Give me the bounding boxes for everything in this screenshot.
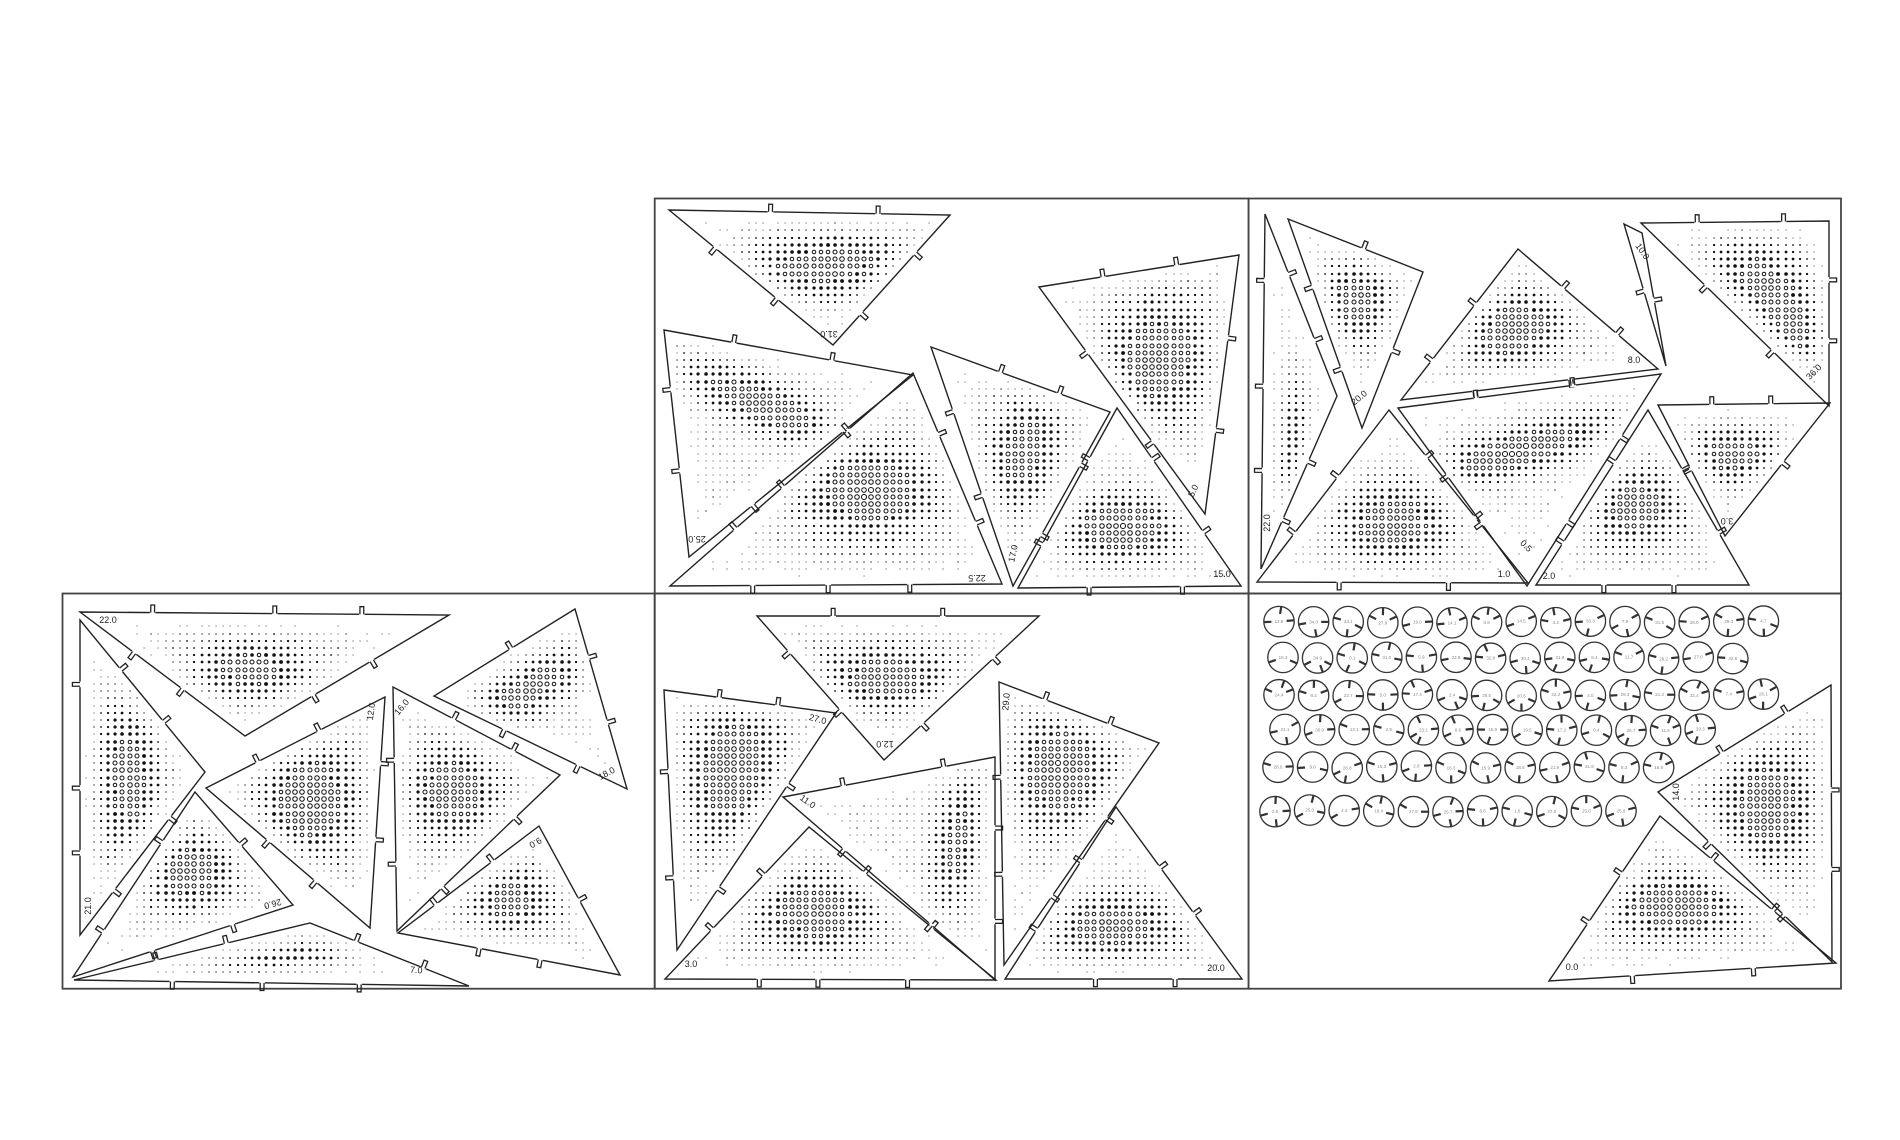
svg-text:14.5: 14.5 xyxy=(1517,619,1526,624)
svg-text:21.1: 21.1 xyxy=(1281,727,1290,732)
svg-text:24.4: 24.4 xyxy=(1275,692,1284,697)
svg-text:22.8: 22.8 xyxy=(1452,655,1461,660)
svg-text:29.5: 29.5 xyxy=(1482,693,1491,698)
svg-text:7.0: 7.0 xyxy=(410,964,423,975)
svg-text:7.4: 7.4 xyxy=(1726,692,1733,697)
svg-text:9.0: 9.0 xyxy=(1309,765,1316,770)
svg-text:22.5: 22.5 xyxy=(968,573,986,583)
svg-text:32.8: 32.8 xyxy=(1486,656,1495,661)
svg-text:3.0: 3.0 xyxy=(1721,516,1734,526)
svg-text:0.4: 0.4 xyxy=(1593,728,1600,733)
svg-text:25.0: 25.0 xyxy=(1582,808,1591,813)
svg-text:14.0: 14.0 xyxy=(1671,783,1681,801)
svg-text:27.6: 27.6 xyxy=(1409,809,1418,814)
svg-text:28.2: 28.2 xyxy=(1659,656,1668,661)
svg-text:29.3: 29.3 xyxy=(1621,692,1630,697)
svg-text:14.1: 14.1 xyxy=(1448,620,1457,625)
svg-text:22.0: 22.0 xyxy=(99,615,117,625)
svg-text:2.8: 2.8 xyxy=(1413,764,1420,769)
svg-text:31.0: 31.0 xyxy=(820,329,838,339)
svg-text:8.2: 8.2 xyxy=(1310,693,1317,698)
svg-text:4.0: 4.0 xyxy=(1587,693,1594,698)
svg-text:26.1: 26.1 xyxy=(1759,692,1768,697)
svg-text:22.0: 22.0 xyxy=(1262,514,1272,532)
svg-text:31.0: 31.0 xyxy=(1382,655,1391,660)
svg-text:5.0: 5.0 xyxy=(1380,692,1387,697)
svg-text:26.7: 26.7 xyxy=(1627,728,1636,733)
svg-text:5.4: 5.4 xyxy=(1591,655,1598,660)
svg-text:4.7: 4.7 xyxy=(1760,619,1767,624)
svg-text:27.9: 27.9 xyxy=(1378,620,1387,625)
svg-text:15.3: 15.3 xyxy=(1377,764,1386,769)
svg-text:8.0: 8.0 xyxy=(1628,355,1641,365)
svg-text:23.1: 23.1 xyxy=(1419,727,1428,732)
svg-text:9.3: 9.3 xyxy=(1621,765,1628,770)
svg-text:15.3: 15.3 xyxy=(1279,655,1288,660)
svg-text:8.6: 8.6 xyxy=(1479,808,1486,813)
svg-text:20.0: 20.0 xyxy=(1207,963,1225,973)
svg-text:30.0: 30.0 xyxy=(1315,727,1324,732)
svg-text:13.1: 13.1 xyxy=(1350,727,1359,732)
svg-text:29.3: 29.3 xyxy=(1696,727,1705,732)
svg-text:0.6: 0.6 xyxy=(1483,620,1490,625)
svg-text:2.4: 2.4 xyxy=(1449,692,1456,697)
svg-text:15.9: 15.9 xyxy=(1488,727,1497,732)
svg-text:18.4: 18.4 xyxy=(1374,809,1383,814)
svg-text:19.0: 19.0 xyxy=(1413,620,1422,625)
svg-text:15.0: 15.0 xyxy=(1213,569,1231,579)
svg-text:1.6: 1.6 xyxy=(1514,809,1521,814)
svg-text:21.9: 21.9 xyxy=(1550,765,1559,770)
svg-text:25.9: 25.9 xyxy=(1617,808,1626,813)
svg-text:26.8: 26.8 xyxy=(1343,765,1352,770)
svg-text:25.7: 25.7 xyxy=(1444,809,1453,814)
svg-text:16.9: 16.9 xyxy=(1654,765,1663,770)
svg-text:34.0: 34.0 xyxy=(1309,619,1318,624)
svg-text:31.5: 31.5 xyxy=(1655,620,1664,625)
svg-text:32.4: 32.4 xyxy=(1690,693,1699,698)
svg-text:3.0: 3.0 xyxy=(685,959,698,969)
svg-text:21.9: 21.9 xyxy=(1555,655,1564,660)
svg-text:8.6: 8.6 xyxy=(1455,728,1462,733)
svg-text:23.1: 23.1 xyxy=(1344,619,1353,624)
svg-text:7.9: 7.9 xyxy=(1622,619,1629,624)
svg-text:5.9: 5.9 xyxy=(1418,655,1425,660)
svg-text:3.9: 3.9 xyxy=(1272,809,1279,814)
svg-text:16.3: 16.3 xyxy=(1447,765,1456,770)
svg-text:33.3: 33.3 xyxy=(1586,619,1595,624)
svg-text:26.0: 26.0 xyxy=(1690,620,1699,625)
svg-text:25.0: 25.0 xyxy=(1305,808,1314,813)
svg-text:27.0: 27.0 xyxy=(1547,809,1556,814)
svg-text:1.0: 1.0 xyxy=(1498,569,1511,579)
svg-text:32.5: 32.5 xyxy=(1728,656,1737,661)
svg-text:22.7: 22.7 xyxy=(1344,693,1353,698)
svg-text:29.0: 29.0 xyxy=(1000,693,1011,711)
svg-text:18.8: 18.8 xyxy=(1516,765,1525,770)
svg-text:28.0: 28.0 xyxy=(1274,765,1283,770)
svg-text:12.8: 12.8 xyxy=(1275,619,1284,624)
svg-text:3.2: 3.2 xyxy=(1553,620,1560,625)
svg-text:0.1: 0.1 xyxy=(1349,655,1356,660)
svg-text:17.2: 17.2 xyxy=(1557,728,1566,733)
svg-text:30.4: 30.4 xyxy=(1521,656,1530,661)
svg-text:19.5: 19.5 xyxy=(1523,728,1532,733)
svg-text:15.9: 15.9 xyxy=(1481,765,1490,770)
svg-text:11.6: 11.6 xyxy=(1661,728,1670,733)
svg-text:0.0: 0.0 xyxy=(1566,962,1579,972)
svg-text:25.0: 25.0 xyxy=(688,534,706,544)
svg-text:2.0: 2.0 xyxy=(1543,571,1556,581)
svg-text:22.2: 22.2 xyxy=(1551,692,1560,697)
svg-text:4.4: 4.4 xyxy=(1341,808,1348,813)
svg-text:11.7: 11.7 xyxy=(1625,655,1634,660)
svg-text:20.6: 20.6 xyxy=(1517,693,1526,698)
svg-text:2.9: 2.9 xyxy=(1386,727,1393,732)
svg-text:29.3: 29.3 xyxy=(1724,619,1733,624)
svg-text:17.4: 17.4 xyxy=(1413,692,1422,697)
svg-text:21.0: 21.0 xyxy=(83,897,93,915)
svg-text:12.0: 12.0 xyxy=(876,739,894,749)
svg-text:31.8: 31.8 xyxy=(1585,764,1594,769)
svg-text:21.2: 21.2 xyxy=(1655,692,1664,697)
svg-text:34.9: 34.9 xyxy=(1313,655,1322,660)
svg-text:27.0: 27.0 xyxy=(1694,655,1703,660)
